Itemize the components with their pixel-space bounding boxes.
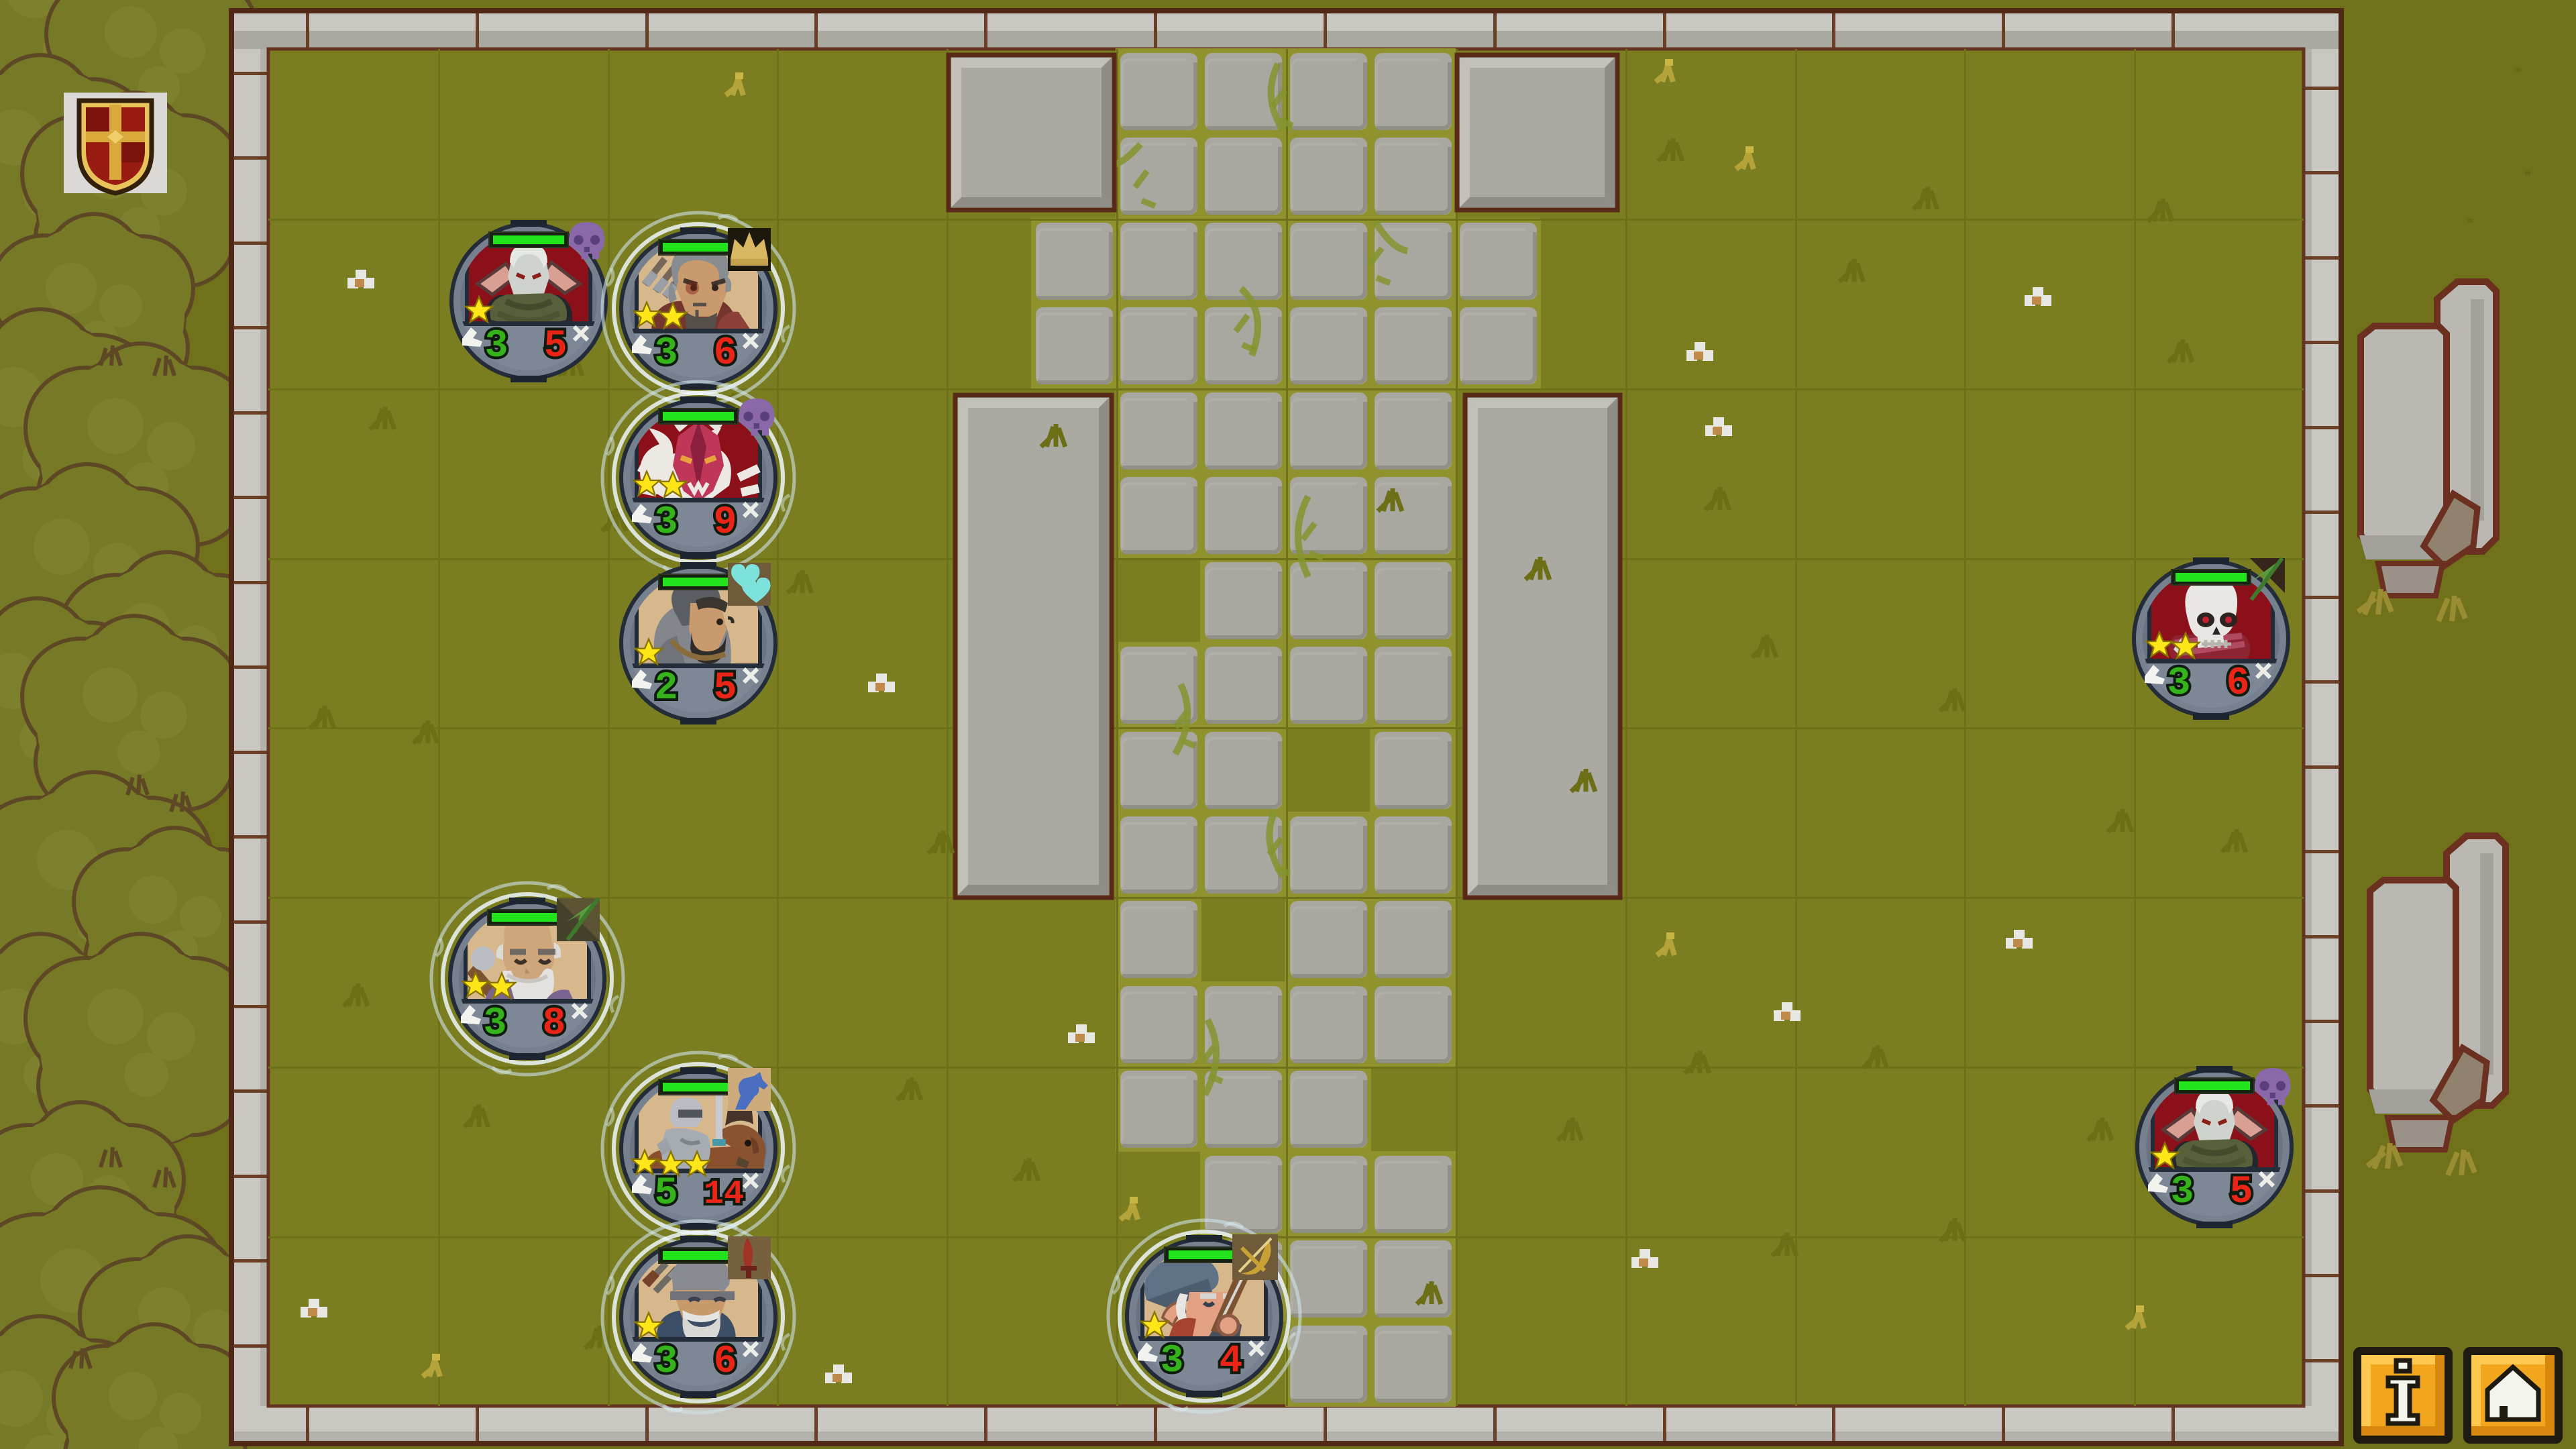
svg-text:6: 6 <box>714 332 737 376</box>
svg-text:3: 3 <box>2167 662 2191 706</box>
svg-text:3: 3 <box>484 1002 507 1046</box>
svg-text:5: 5 <box>714 667 737 710</box>
svg-text:3: 3 <box>2171 1171 2194 1214</box>
svg-text:3: 3 <box>655 1340 678 1384</box>
svg-text:5: 5 <box>655 1172 678 1216</box>
svg-text:3: 3 <box>485 325 508 368</box>
svg-text:5: 5 <box>544 325 568 368</box>
svg-text:6: 6 <box>714 1340 737 1384</box>
svg-text:9: 9 <box>714 501 737 545</box>
svg-text:3: 3 <box>655 332 678 376</box>
svg-text:3: 3 <box>655 501 678 545</box>
svg-text:3: 3 <box>1161 1340 1184 1383</box>
svg-text:6: 6 <box>2226 662 2250 706</box>
svg-text:5: 5 <box>2230 1171 2253 1214</box>
svg-text:8: 8 <box>543 1002 566 1046</box>
svg-text:2: 2 <box>655 667 678 710</box>
svg-text:14: 14 <box>704 1175 744 1214</box>
svg-text:4: 4 <box>1220 1340 1243 1383</box>
